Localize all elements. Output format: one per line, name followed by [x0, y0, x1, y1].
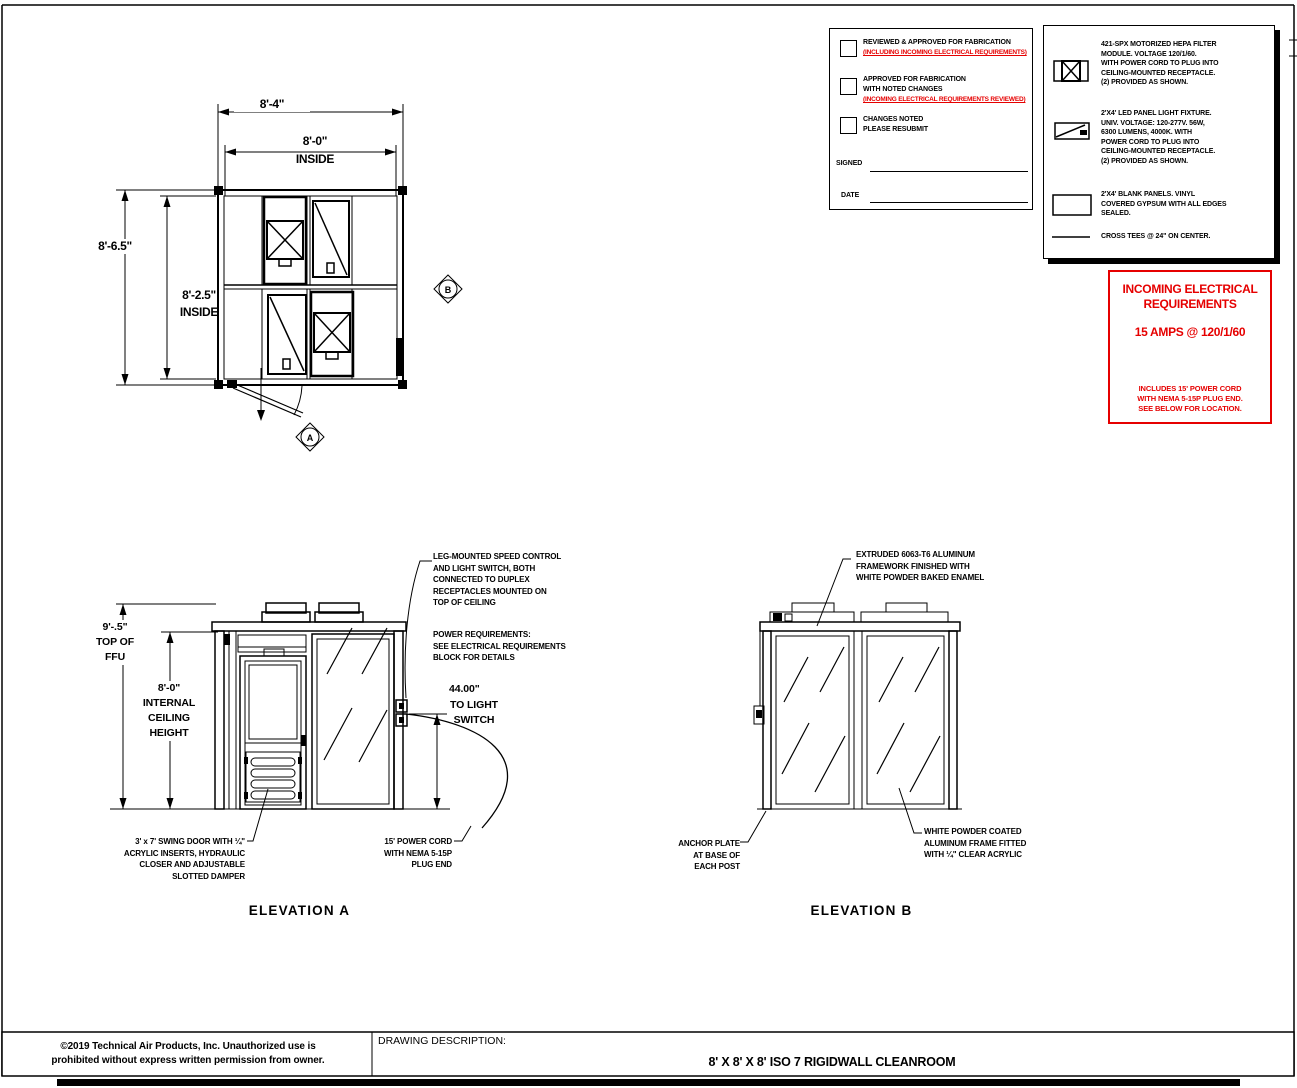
- marker-b-letter: B: [445, 285, 452, 295]
- power-cord-curve: [406, 714, 508, 828]
- elevation-a-acrylic-panel: [312, 628, 394, 809]
- elevation-b-drawing: [740, 559, 962, 842]
- elevation-a-cord-note: 15' POWER CORD WITH NEMA 5-15P PLUG END: [356, 836, 452, 871]
- elevation-b-frame-note: EXTRUDED 6063-T6 ALUMINUM FRAMEWORK FINI…: [856, 549, 984, 584]
- marker-a-letter: A: [307, 433, 314, 443]
- approval-option-label: APPROVED FOR FABRICATION WITH NOTED CHAN…: [863, 75, 966, 94]
- plan-dim-outer-height: 8'-6.5": [84, 239, 146, 254]
- drawing-sheet: B A: [0, 0, 1297, 1088]
- signature-line[interactable]: [870, 171, 1028, 172]
- plan-dim-inner-width-suffix: INSIDE: [282, 152, 348, 167]
- cross-tee-symbol: [1052, 234, 1090, 240]
- electrical-note: INCLUDES 15' POWER CORD WITH NEMA 5-15P …: [1110, 384, 1270, 414]
- elevation-b-acrylic-panels: [776, 636, 944, 804]
- legend-item-text: 2'X4' LED PANEL LIGHT FIXTURE. UNIV. VOL…: [1101, 109, 1215, 166]
- approval-option-note: (INCLUDING INCOMING ELECTRICAL REQUIREME…: [863, 48, 1027, 57]
- elevation-a-door-note: 3' x 7' SWING DOOR WITH ¼" ACRYLIC INSER…: [97, 836, 245, 882]
- elevation-a-switch-dim-value: 44.00": [449, 682, 480, 697]
- plan-hepa-panel-bottom: [311, 292, 353, 376]
- section-marker-b: B: [434, 275, 462, 303]
- date-label: DATE: [841, 191, 859, 201]
- elevation-a-door: [240, 656, 306, 809]
- elevation-b-acrylic-note: WHITE POWDER COATED ALUMINUM FRAME FITTE…: [924, 826, 1026, 861]
- approval-checkbox-noted-changes[interactable]: [840, 78, 857, 95]
- approval-option-label: CHANGES NOTED PLEASE RESUBMIT: [863, 115, 928, 134]
- elevation-a-ffu-dim: 9'-.5" TOP OF FFU: [82, 620, 148, 665]
- elevation-b-anchor-note: ANCHOR PLATE AT BASE OF EACH POST: [664, 838, 740, 873]
- date-line[interactable]: [870, 202, 1028, 203]
- light-switch-boxes: [396, 700, 407, 726]
- copyright-text: ©2019 Technical Air Products, Inc. Unaut…: [12, 1040, 364, 1067]
- approval-block: REVIEWED & APPROVED FOR FABRICATION (INC…: [829, 28, 1033, 210]
- plan-dim-inner-height-suffix: INSIDE: [168, 305, 230, 320]
- signed-label: SIGNED: [836, 159, 862, 169]
- approval-option-label: REVIEWED & APPROVED FOR FABRICATION: [863, 38, 1011, 48]
- section-marker-a: A: [296, 423, 324, 451]
- approval-checkbox-reviewed[interactable]: [840, 40, 857, 57]
- elevation-a-switch-note: LEG-MOUNTED SPEED CONTROL AND LIGHT SWIT…: [433, 551, 561, 609]
- plan-dim-inner-height: 8'-2.5": [168, 288, 230, 303]
- electrical-title: INCOMING ELECTRICAL REQUIREMENTS: [1110, 282, 1270, 312]
- plan-led-panel-bottom: [268, 295, 306, 374]
- plan-dim-outer-width: 8'-4": [234, 97, 310, 112]
- approval-option-note: (INCOMING ELECTRICAL REQUIREMENTS REVIEW…: [863, 95, 1025, 104]
- elevation-a-switch-dim-label: TO LIGHT SWITCH: [434, 698, 514, 728]
- drawing-description-label: DRAWING DESCRIPTION:: [378, 1035, 506, 1047]
- elevation-a-title: ELEVATION A: [242, 902, 357, 919]
- elevation-a-ceiling-dim: 8'-0" INTERNAL CEILING HEIGHT: [130, 681, 208, 741]
- elevation-a-power-note: POWER REQUIREMENTS: SEE ELECTRICAL REQUI…: [433, 629, 566, 664]
- electrical-requirements-box: INCOMING ELECTRICAL REQUIREMENTS 15 AMPS…: [1108, 270, 1272, 424]
- approval-checkbox-resubmit[interactable]: [840, 117, 857, 134]
- hepa-filter-symbol: [1053, 60, 1089, 82]
- plan-led-panel-top: [313, 201, 349, 277]
- blank-panel-symbol: [1052, 194, 1092, 216]
- legend-block: 421-SPX MOTORIZED HEPA FILTER MODULE. VO…: [1043, 25, 1275, 259]
- drawing-description: 8' X 8' X 8' ISO 7 RIGIDWALL CLEANROOM: [372, 1055, 1292, 1069]
- electrical-rating: 15 AMPS @ 120/1/60: [1110, 325, 1270, 340]
- led-panel-symbol: [1054, 122, 1090, 140]
- legend-item-text: 2'X4' BLANK PANELS. VINYL COVERED GYPSUM…: [1101, 190, 1226, 219]
- elevation-b-title: ELEVATION B: [804, 902, 919, 919]
- plan-power-cord-location: [396, 338, 404, 376]
- legend-item-text: 421-SPX MOTORIZED HEPA FILTER MODULE. VO…: [1101, 40, 1219, 88]
- plan-swing-door: [227, 368, 303, 421]
- plan-dim-inner-width: 8'-0": [282, 134, 348, 149]
- plan-hepa-panel-top: [264, 197, 306, 284]
- legend-item-text: CROSS TEES @ 24" ON CENTER.: [1101, 232, 1210, 242]
